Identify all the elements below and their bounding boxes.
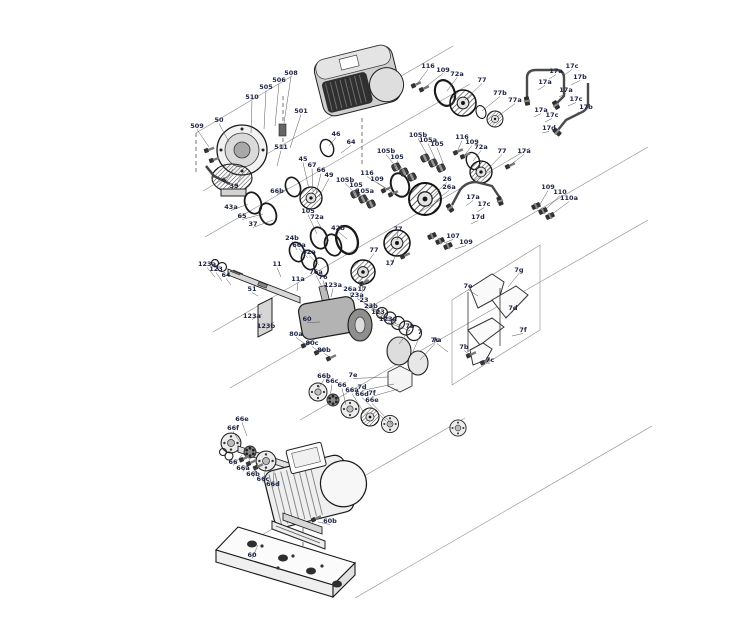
part-callout-17c: 17c xyxy=(478,200,491,208)
part-callout-7f: 7f xyxy=(519,326,527,334)
part-callout-17b: 17b xyxy=(573,73,587,81)
part-callout-7a: 7a xyxy=(433,336,442,344)
part-callout-7b: 7b xyxy=(459,343,469,351)
part-callout-123a: 123a xyxy=(243,312,261,320)
part-callout-105: 105 xyxy=(390,153,404,161)
part-callout-64: 64 xyxy=(346,138,356,146)
part-callout-67: 67 xyxy=(307,161,316,169)
part-callout-506: 506 xyxy=(272,76,286,84)
part-callout-17: 17 xyxy=(385,259,394,267)
part-callout-66b: 66b xyxy=(270,187,284,195)
part-callout-72a: 72a xyxy=(450,70,463,78)
part-callout-26a: 26a xyxy=(442,183,455,191)
part-callout-77: 77 xyxy=(497,147,506,155)
part-callout-509: 509 xyxy=(190,122,204,130)
part-callout-17b: 17b xyxy=(579,103,593,111)
part-callout-501: 501 xyxy=(294,107,308,115)
part-callout-7e: 7e xyxy=(349,371,359,379)
part-callout-77b: 77b xyxy=(493,89,507,97)
part-callout-11a: 11a xyxy=(291,275,304,283)
part-callout-77a: 77a xyxy=(508,96,521,104)
part-callout-17c: 17c xyxy=(566,62,579,70)
part-callout-51: 51 xyxy=(247,285,257,293)
part-callout-72a: 72a xyxy=(474,143,487,151)
part-callout-66d: 66d xyxy=(266,480,280,488)
sleeve-cup xyxy=(387,337,411,365)
part-callout-17c: 17c xyxy=(570,95,583,103)
part-callout-105: 105 xyxy=(430,140,444,148)
part-callout-39: 39 xyxy=(229,182,239,190)
part-callout-50: 50 xyxy=(214,116,224,124)
part-callout-107: 107 xyxy=(446,232,460,240)
part-callout-66e: 66e xyxy=(365,396,379,404)
part-callout-80b: 80b xyxy=(317,346,331,354)
part-callout-11: 11 xyxy=(272,260,282,268)
part-callout-511: 511 xyxy=(274,143,288,151)
vibration-foot xyxy=(306,568,316,575)
part-callout-7c: 7c xyxy=(486,356,495,364)
part-callout-7: 7 xyxy=(418,328,423,336)
vibration-foot xyxy=(247,541,257,548)
part-callout-77: 77 xyxy=(369,246,378,254)
part-callout-17a: 17a xyxy=(559,86,572,94)
part-callout-60b: 60b xyxy=(323,517,337,525)
vibration-foot xyxy=(278,555,288,562)
part-callout-508: 508 xyxy=(284,69,298,77)
part-callout-17a: 17a xyxy=(517,147,530,155)
exploded-parts-diagram: 5095051050550650850151163943a65374664456… xyxy=(0,0,752,632)
part-callout-17a: 17a xyxy=(538,78,551,86)
part-callout-80a: 80a xyxy=(289,330,302,338)
part-callout-77: 77 xyxy=(393,225,402,233)
part-callout-64: 64 xyxy=(221,271,231,279)
part-callout-26: 26 xyxy=(442,175,452,183)
part-callout-76: 76 xyxy=(318,273,328,281)
part-callout-7d: 7d xyxy=(508,304,518,312)
part-callout-60: 60 xyxy=(302,315,312,323)
part-callout-123a: 123a xyxy=(324,281,342,289)
part-callout-7g: 7g xyxy=(514,266,524,274)
part-callout-77: 77 xyxy=(477,76,486,84)
part-callout-505: 505 xyxy=(259,83,273,91)
part-callout-37: 37 xyxy=(248,220,257,228)
vibration-foot xyxy=(332,581,342,588)
part-callout-109: 109 xyxy=(370,175,384,183)
part-callout-17a: 17a xyxy=(549,67,562,75)
part-callout-7b: 7b xyxy=(405,322,415,330)
part-callout-42a: 42a xyxy=(302,248,315,256)
part-callout-17d: 17d xyxy=(471,213,485,221)
part-callout-109: 109 xyxy=(459,238,473,246)
part-callout-510: 510 xyxy=(245,93,259,101)
part-callout-66e: 66e xyxy=(235,415,249,423)
sensor-part xyxy=(279,124,286,136)
part-callout-123b: 123b xyxy=(257,322,276,330)
part-callout-49: 49 xyxy=(324,171,334,179)
part-callout-17d: 17d xyxy=(542,124,556,132)
part-callout-65: 65 xyxy=(237,212,247,220)
part-callout-123a: 123a xyxy=(379,315,397,323)
part-callout-105a: 105a xyxy=(356,187,374,195)
part-callout-60: 60 xyxy=(247,551,257,559)
part-callout-46: 46 xyxy=(331,130,341,138)
foot-bracket xyxy=(388,366,412,392)
part-callout-42b: 42b xyxy=(331,224,345,232)
part-callout-17c: 17c xyxy=(546,111,559,119)
diagram-canvas: 5095051050550650850151163943a65374664456… xyxy=(0,0,752,632)
part-callout-72a: 72a xyxy=(310,213,323,221)
part-callout-109: 109 xyxy=(436,66,450,74)
part-callout-6: 6 xyxy=(222,176,227,184)
part-callout-7e: 7e xyxy=(464,282,474,290)
part-callout-43a: 43a xyxy=(224,203,237,211)
part-callout-66f: 66f xyxy=(227,424,239,432)
part-callout-110a: 110a xyxy=(560,194,578,202)
part-callout-116: 116 xyxy=(421,62,435,70)
